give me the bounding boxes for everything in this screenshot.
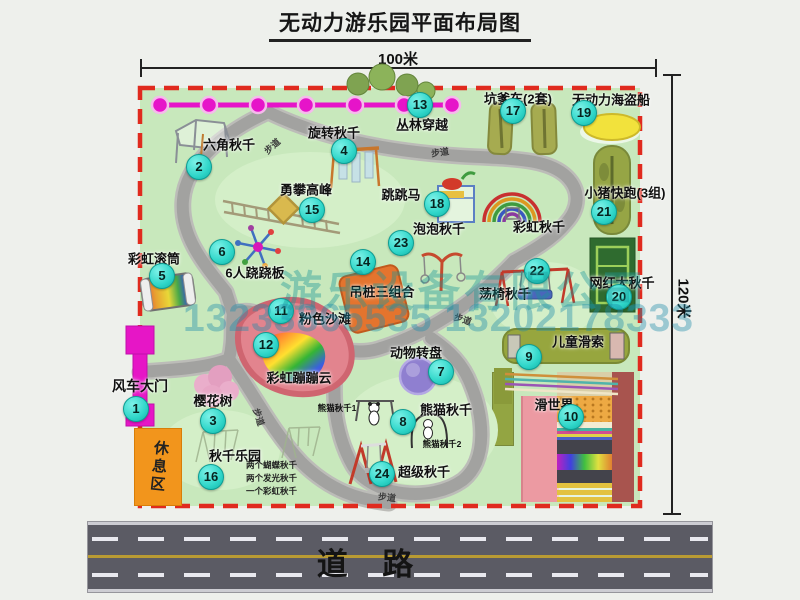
badge-swing-park: 16 bbox=[198, 464, 224, 490]
label-windmill-gate: 风车大门 bbox=[112, 376, 168, 396]
badge-slide-world: 10 bbox=[558, 404, 584, 430]
badge-rainbow-roller: 5 bbox=[149, 263, 175, 289]
badge-jungle-crossing: 13 bbox=[407, 92, 433, 118]
badge-swing-chair: 22 bbox=[524, 258, 550, 284]
label-animal-turntable: 动物转盘 bbox=[390, 343, 442, 362]
label-panda-swing: 熊猫秋千 bbox=[420, 400, 472, 419]
badge-climbing-peak: 15 bbox=[299, 197, 325, 223]
badge-rotating-swing: 4 bbox=[331, 138, 357, 164]
swing-note-1: 两个蝴蝶秋千 bbox=[246, 459, 297, 471]
badge-pit-car: 17 bbox=[500, 98, 526, 124]
label-panda-swing-2: 熊猫秋千2 bbox=[423, 438, 462, 450]
playground-layout-map: 无动力游乐园平面布局图 100米 120米 bbox=[0, 0, 800, 600]
label-piggy-run: 小猪快跑(3组) bbox=[585, 183, 666, 202]
badge-big-swing: 20 bbox=[606, 284, 632, 310]
badge-panda-swing: 8 bbox=[390, 409, 416, 435]
label-panda-swing-1: 熊猫秋千1 bbox=[318, 402, 357, 414]
badge-six-seat-seesaw: 6 bbox=[209, 239, 235, 265]
label-super-swing: 超级秋千 bbox=[398, 462, 450, 481]
label-climbing-peak: 勇攀高峰 bbox=[280, 180, 332, 199]
badge-pink-beach: 11 bbox=[268, 298, 294, 324]
badge-cherry-tree: 3 bbox=[200, 408, 226, 434]
label-jumping-horse: 跳跳马 bbox=[381, 185, 420, 204]
swing-note-2: 两个发光秋千 bbox=[246, 472, 297, 484]
label-swing-chair: 荡椅秋千 bbox=[479, 284, 531, 303]
badge-hanging-pile-combo: 14 bbox=[350, 249, 376, 275]
badge-bubble-swing: 23 bbox=[388, 230, 414, 256]
swing-note-3: 一个彩虹秋千 bbox=[246, 485, 297, 497]
label-hanging-pile-combo: 吊桩三组合 bbox=[349, 282, 414, 301]
badge-windmill-gate: 1 bbox=[123, 396, 149, 422]
label-rotating-swing: 旋转秋千 bbox=[308, 123, 360, 142]
badge-animal-turntable: 7 bbox=[428, 359, 454, 385]
badge-jumping-horse: 18 bbox=[424, 191, 450, 217]
path-label-5: 步道 bbox=[377, 490, 396, 505]
label-rainbow-bounce-cloud: 彩虹蹦蹦云 bbox=[266, 368, 331, 387]
label-hexagon-swing: 六角秋千 bbox=[203, 135, 255, 154]
label-six-seat-seesaw: 6人跷跷板 bbox=[225, 263, 284, 282]
page-title: 无动力游乐园平面布局图 bbox=[0, 7, 800, 42]
badge-super-swing: 24 bbox=[369, 461, 395, 487]
label-bubble-swing: 泡泡秋千 bbox=[413, 219, 465, 238]
rest-area: 休息区 bbox=[134, 428, 182, 506]
badge-piggy-run: 21 bbox=[591, 199, 617, 225]
badge-hexagon-swing: 2 bbox=[186, 154, 212, 180]
path-label-2: 步道 bbox=[430, 144, 450, 159]
badge-rainbow-bounce-cloud: 12 bbox=[253, 332, 279, 358]
badge-pirate-ship: 19 bbox=[571, 100, 597, 126]
label-cherry-tree: 樱花树 bbox=[193, 391, 232, 410]
label-rainbow-swing: 彩虹秋千 bbox=[513, 217, 565, 236]
label-pink-beach: 粉色沙滩 bbox=[299, 309, 351, 328]
label-kids-zipline: 儿童滑索 bbox=[552, 332, 604, 351]
badge-kids-zipline: 9 bbox=[516, 344, 542, 370]
bubble-swing-icon bbox=[421, 254, 465, 291]
